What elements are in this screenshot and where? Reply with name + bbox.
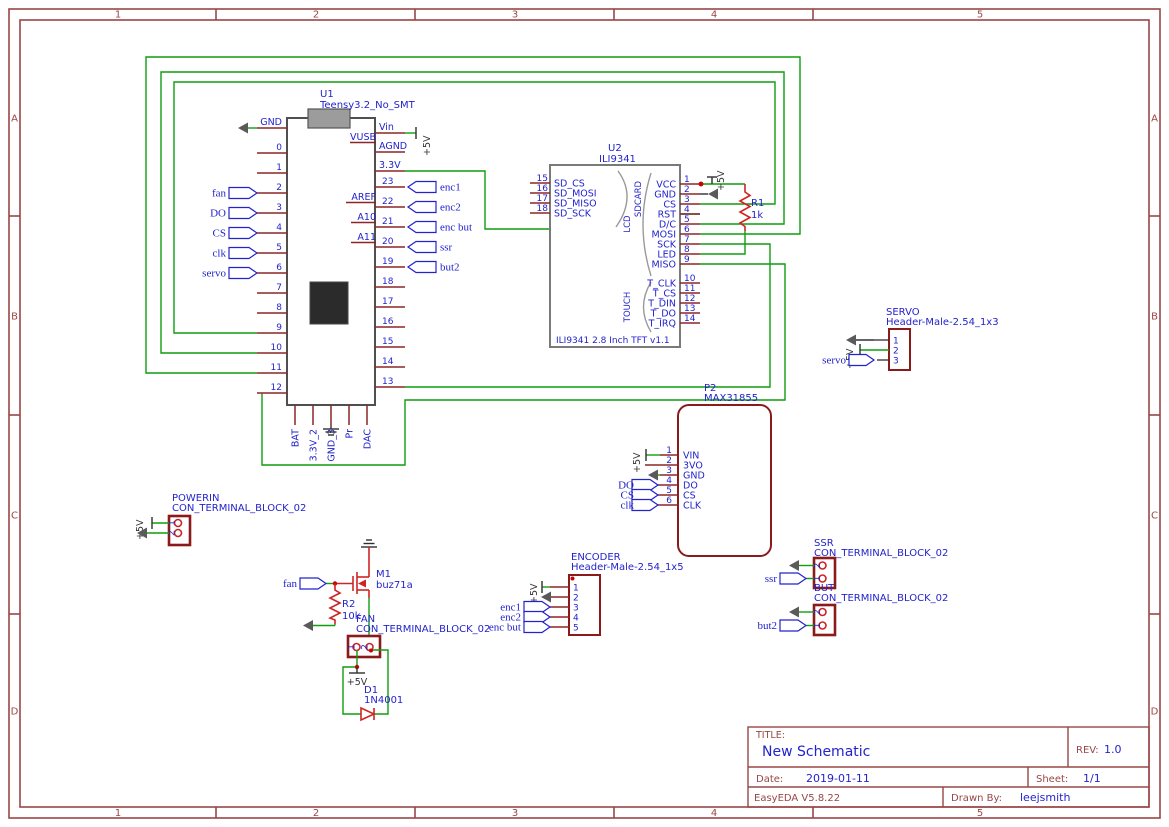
netflag-ssr-u1[interactable]: ssr <box>408 242 453 254</box>
pin-number: 4 <box>573 614 579 624</box>
svg-text:18: 18 <box>537 204 549 214</box>
pin-number: 3 <box>893 357 899 367</box>
m1-value: buz71a <box>376 580 413 591</box>
ground-icon <box>648 470 658 481</box>
svg-text:VUSB: VUSB <box>350 132 376 143</box>
svg-text:3.3V_2: 3.3V_2 <box>309 429 320 461</box>
svg-text:4: 4 <box>684 205 690 215</box>
ground-u1-top[interactable] <box>238 123 257 134</box>
netflag-encbut[interactable]: enc but <box>489 622 550 634</box>
pin-number: 2 <box>813 563 823 569</box>
component-ssr[interactable]: SSR CON_TERMINAL_BLOCK_02 2 1 <box>813 538 948 588</box>
svg-text:5: 5 <box>276 243 282 253</box>
svg-text:2: 2 <box>684 185 690 195</box>
netflag-cs-u1[interactable]: CS <box>213 228 257 240</box>
plus5v-label: +5V <box>632 452 643 473</box>
svg-text:SD_SCK: SD_SCK <box>554 209 592 220</box>
servo-value: Header-Male-2.54_1x3 <box>886 317 999 328</box>
m1-ref: M1 <box>376 569 391 580</box>
svg-text:BAT: BAT <box>291 429 302 447</box>
pin-number: 1 <box>813 623 823 629</box>
pin-number: 1 <box>348 644 358 650</box>
netflag-enc2-u1[interactable]: enc2 <box>408 202 461 214</box>
svg-text:DAC: DAC <box>363 429 374 449</box>
ground-icon <box>541 592 551 603</box>
drawn-by-label: Drawn By: <box>951 793 1002 804</box>
svg-text:4: 4 <box>276 223 282 233</box>
netflag-label: clk <box>213 248 227 260</box>
svg-text:1: 1 <box>276 163 282 173</box>
svg-text:15: 15 <box>537 174 548 184</box>
col-label: 2 <box>313 10 319 21</box>
ground-m1-earth[interactable] <box>361 540 377 547</box>
netflag-but2[interactable]: but2 <box>757 620 814 632</box>
usb-connector <box>308 109 350 128</box>
mcu-chip <box>310 282 348 324</box>
svg-text:0: 0 <box>276 143 282 153</box>
ground-p2[interactable] <box>648 470 660 481</box>
component-powerin[interactable]: POWERIN CON_TERMINAL_BLOCK_02 1 2 <box>168 493 307 545</box>
wires[interactable] <box>146 57 800 465</box>
rev-value[interactable]: 1.0 <box>1104 743 1122 756</box>
r2-ref: R2 <box>342 599 355 610</box>
row-label: A <box>11 114 18 125</box>
netflag-servo-u1[interactable]: servo <box>202 268 257 280</box>
svg-text:19: 19 <box>382 257 394 267</box>
svg-text:12: 12 <box>271 383 282 393</box>
svg-text:20: 20 <box>382 237 394 247</box>
pin-number: 2 <box>573 594 579 604</box>
svg-text:9: 9 <box>276 323 282 333</box>
svg-text:23: 23 <box>382 177 393 187</box>
svg-text:22: 22 <box>382 197 393 207</box>
svg-text:3: 3 <box>666 466 672 476</box>
svg-text:Pr: Pr <box>345 429 356 439</box>
col-label: 5 <box>977 10 983 21</box>
netflag-label: ssr <box>440 242 453 254</box>
svg-text:10: 10 <box>684 274 696 284</box>
ground-icon <box>789 560 799 571</box>
netflag-do-u1[interactable]: DO <box>210 208 257 220</box>
row-label: A <box>1151 114 1158 125</box>
component-p2[interactable]: P2 MAX31855 12 34 56 VIN3VO GNDDO CSCLK <box>645 383 771 556</box>
svg-text:9: 9 <box>684 255 690 265</box>
ground-icon <box>303 620 313 631</box>
svg-text:8: 8 <box>684 245 690 255</box>
plus5v-label: +5V <box>716 170 727 191</box>
r1-ref: R1 <box>751 198 764 209</box>
netflag-fan-u1[interactable]: fan <box>212 188 257 200</box>
ground-r2[interactable] <box>303 620 335 631</box>
component-encoder[interactable]: ENCODER Header-Male-2.54_1x5 1 2 3 4 5 <box>550 552 684 635</box>
component-d1[interactable]: D1 1N4001 <box>361 685 403 720</box>
col-label: 3 <box>512 10 518 21</box>
netflag-clk-p2[interactable]: clk <box>621 500 658 512</box>
d1-value: 1N4001 <box>364 695 403 706</box>
u1-bottom-pins: BAT 3.3V_2 GND_3 Pr DAC <box>291 405 374 462</box>
pin-number: 3 <box>573 604 579 614</box>
svg-text:2: 2 <box>666 456 672 466</box>
component-u2[interactable]: U2 ILI9341 1516 1718 SD_CS SD_MOSI SD_MI… <box>530 143 700 347</box>
pin-number: 5 <box>573 624 579 634</box>
svg-text:Vin: Vin <box>379 122 394 133</box>
u2-note: ILI9341 2.8 Inch TFT v1.1 <box>556 336 670 346</box>
group-sdcard: SDCARD <box>634 180 644 217</box>
svg-text:11: 11 <box>271 363 282 373</box>
svg-text:14: 14 <box>684 314 696 324</box>
svg-text:12: 12 <box>684 294 695 304</box>
u1-left-pins <box>257 128 287 393</box>
col-label: 3 <box>512 808 518 819</box>
component-but[interactable]: BUT CON_TERMINAL_BLOCK_02 2 1 <box>813 583 948 635</box>
svg-text:21: 21 <box>382 217 393 227</box>
netflag-label: fan <box>212 188 227 200</box>
svg-text:1: 1 <box>684 175 690 185</box>
ground-u2-gnd[interactable] <box>700 189 718 200</box>
svg-text:A10: A10 <box>357 212 376 223</box>
pin-number: 1 <box>813 576 823 582</box>
netflag-label: enc but <box>489 622 521 634</box>
u1-left-pin-labels: GND0 12 34 56 78 910 1112 <box>260 117 282 393</box>
sheet-frame: 1 2 3 4 5 1 2 3 4 5 A B C D A B C D <box>9 9 1160 819</box>
col-label: 2 <box>313 808 319 819</box>
svg-text:11: 11 <box>684 284 695 294</box>
netflag-label: servo <box>202 268 226 280</box>
svg-text:GND: GND <box>260 117 282 128</box>
row-label: B <box>1151 312 1158 323</box>
netflag-label: but2 <box>757 620 777 632</box>
p2-value: MAX31855 <box>704 393 758 404</box>
ground-but[interactable] <box>789 607 814 618</box>
svg-text:4: 4 <box>666 476 672 486</box>
svg-text:3: 3 <box>684 195 690 205</box>
u2-value: ILI9341 <box>599 154 636 165</box>
svg-text:AREF: AREF <box>351 192 376 203</box>
netflag-clk-u1[interactable]: clk <box>213 248 257 260</box>
rev-label: REV: <box>1076 745 1099 756</box>
plus5v-label: +5V <box>529 583 540 604</box>
encoder-value: Header-Male-2.54_1x5 <box>571 562 684 573</box>
ground-encoder[interactable] <box>541 592 551 603</box>
drawn-by-value[interactable]: leejsmith <box>1020 791 1070 804</box>
ground-icon <box>789 607 799 618</box>
row-label: B <box>11 312 18 323</box>
schematic-title[interactable]: New Schematic <box>762 744 870 760</box>
but-value: CON_TERMINAL_BLOCK_02 <box>814 593 948 604</box>
svg-text:5: 5 <box>666 486 672 496</box>
svg-text:8: 8 <box>276 303 282 313</box>
title-block: TITLE: New Schematic REV: 1.0 Date: 2019… <box>748 727 1149 807</box>
netflag-label: CS <box>213 228 226 240</box>
svg-text:16: 16 <box>537 184 549 194</box>
netflag-encbut-u1[interactable]: enc but <box>408 222 472 234</box>
pin1-dot <box>571 577 575 581</box>
r1-value: 1k <box>751 210 763 221</box>
row-label: C <box>11 511 18 522</box>
plus5v-label: +5V <box>422 135 433 156</box>
svg-text:13: 13 <box>684 304 695 314</box>
ssr-value: CON_TERMINAL_BLOCK_02 <box>814 548 948 559</box>
u2-ref: U2 <box>608 143 622 154</box>
ground-icon <box>846 335 856 346</box>
frame-ticks <box>9 9 1160 818</box>
svg-text:3: 3 <box>276 203 282 213</box>
svg-text:14: 14 <box>382 357 394 367</box>
col-label: 5 <box>977 808 983 819</box>
netflag-label: ssr <box>765 573 778 585</box>
svg-text:6: 6 <box>276 263 282 273</box>
pin-number: 2 <box>813 609 823 615</box>
junction-u2-vcc <box>699 182 704 187</box>
pin-number: 1 <box>893 337 899 347</box>
component-u1[interactable]: U1 Teensy3.2_No_SMT GND0 12 34 56 78 910… <box>257 89 416 462</box>
ground-icon <box>238 123 248 134</box>
netflag-but2-u1[interactable]: but2 <box>408 262 460 274</box>
col-label: 1 <box>115 10 121 21</box>
pin-number: 2 <box>893 347 899 357</box>
netflag-ssr[interactable]: ssr <box>765 573 814 585</box>
svg-text:7: 7 <box>276 283 282 293</box>
netflag-label: DO <box>210 208 226 220</box>
row-label: D <box>11 707 19 718</box>
svg-text:6: 6 <box>666 496 672 506</box>
ground-ssr[interactable] <box>789 560 814 571</box>
svg-text:13: 13 <box>382 377 393 387</box>
power-flag-encoder[interactable]: +5V <box>529 581 550 604</box>
power-flag-vin[interactable]: +5V <box>416 127 433 156</box>
svg-text:17: 17 <box>537 194 548 204</box>
pin-number: 2 <box>361 644 371 650</box>
junction-fan-pin2 <box>369 649 373 653</box>
netflag-label: enc1 <box>440 182 461 194</box>
u1-ref: U1 <box>320 89 334 100</box>
netflag-label: servo <box>822 355 846 367</box>
svg-text:3.3V: 3.3V <box>379 160 401 171</box>
svg-text:6: 6 <box>684 225 690 235</box>
row-label: D <box>1151 707 1159 718</box>
ground-icon <box>708 189 718 200</box>
row-label: C <box>1151 511 1158 522</box>
svg-text:18: 18 <box>382 277 394 287</box>
group-touch: TOUCH <box>623 292 633 323</box>
svg-text:16: 16 <box>382 317 394 327</box>
tool-version: EasyEDA V5.8.22 <box>754 793 840 804</box>
svg-text:7: 7 <box>684 235 690 245</box>
power-flag-u2[interactable]: +5V <box>707 170 727 191</box>
svg-text:5: 5 <box>684 215 690 225</box>
col-label: 4 <box>711 808 717 819</box>
svg-text:GND_3: GND_3 <box>327 429 338 462</box>
svg-text:15: 15 <box>382 337 393 347</box>
svg-text:17: 17 <box>382 297 393 307</box>
svg-text:2: 2 <box>276 183 282 193</box>
netflag-label: clk <box>621 500 635 512</box>
component-fan[interactable]: FAN CON_TERMINAL_BLOCK_02 1 2 <box>348 614 491 657</box>
netflag-label: enc but <box>440 222 472 234</box>
mosfet-arrow <box>358 580 366 588</box>
title-label: TITLE: <box>755 730 785 741</box>
sheet-label: Sheet: <box>1036 774 1068 785</box>
netflag-enc1-u1[interactable]: enc1 <box>408 182 461 194</box>
group-lcd: LCD <box>623 215 633 233</box>
svg-text:A11: A11 <box>357 232 376 243</box>
svg-text:10: 10 <box>271 343 283 353</box>
u1-value: Teensy3.2_No_SMT <box>319 100 416 111</box>
power-flag-p2[interactable]: +5V <box>632 449 660 473</box>
svg-text:1: 1 <box>666 446 672 456</box>
col-label: 1 <box>115 808 121 819</box>
netflag-label: fan <box>283 578 298 590</box>
col-label: 4 <box>711 10 717 21</box>
svg-text:AGND: AGND <box>379 141 407 152</box>
power-flag-powerin[interactable]: +5V <box>135 517 169 540</box>
powerin-value: CON_TERMINAL_BLOCK_02 <box>172 503 306 514</box>
date-value[interactable]: 2019-01-11 <box>806 772 870 785</box>
date-label: Date: <box>756 774 783 785</box>
pin-number: 1 <box>573 584 579 594</box>
netflag-fan-gate[interactable]: fan <box>283 578 335 590</box>
svg-text:CLK: CLK <box>683 501 702 512</box>
sheet-value[interactable]: 1/1 <box>1083 772 1101 785</box>
schematic-canvas[interactable]: 1 2 3 4 5 1 2 3 4 5 A B C D A B C D <box>0 0 1169 827</box>
svg-text:MISO: MISO <box>651 260 676 271</box>
component-servo[interactable]: SERVO Header-Male-2.54_1x3 1 2 3 <box>860 307 999 370</box>
fan-value: CON_TERMINAL_BLOCK_02 <box>356 624 490 635</box>
component-m1[interactable]: M1 buz71a <box>335 547 413 598</box>
netflag-label: enc2 <box>440 202 461 214</box>
netflag-label: but2 <box>440 262 460 274</box>
ground-servo[interactable] <box>846 335 874 346</box>
svg-text:T_IRQ: T_IRQ <box>648 319 676 330</box>
